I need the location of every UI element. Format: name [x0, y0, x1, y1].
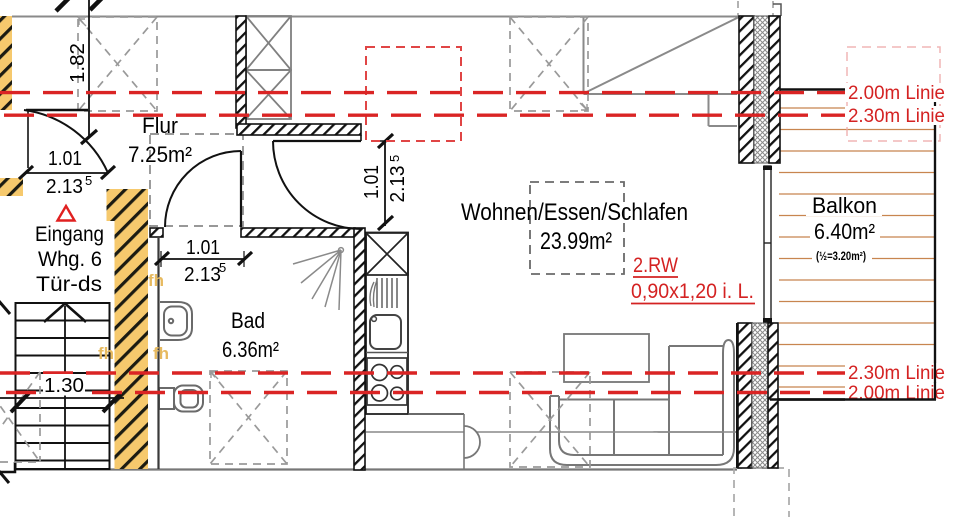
- svg-text:2.13: 2.13: [184, 264, 221, 286]
- svg-text:Wohnen/Essen/Schlafen: Wohnen/Essen/Schlafen: [461, 199, 688, 226]
- svg-text:fh: fh: [153, 344, 169, 363]
- svg-text:fh: fh: [148, 271, 164, 290]
- svg-text:Balkon: Balkon: [812, 193, 877, 218]
- svg-text:Tür-ds: Tür-ds: [36, 273, 102, 296]
- svg-text:2.00m Linie: 2.00m Linie: [848, 83, 945, 104]
- svg-text:2.13: 2.13: [46, 176, 83, 198]
- svg-text:fh: fh: [98, 344, 114, 363]
- svg-text:Flur: Flur: [142, 113, 178, 138]
- svg-text:6.40m²: 6.40m²: [814, 219, 875, 244]
- svg-text:2.30m Linie: 2.30m Linie: [848, 106, 945, 127]
- svg-text:1.01: 1.01: [361, 165, 383, 199]
- svg-text:2.00m Linie: 2.00m Linie: [848, 383, 945, 404]
- svg-text:1.82: 1.82: [67, 43, 89, 83]
- svg-text:2.RW: 2.RW: [633, 254, 678, 277]
- svg-text:1.01: 1.01: [48, 148, 82, 170]
- svg-text:Eingang: Eingang: [35, 223, 104, 246]
- svg-text:1.01: 1.01: [186, 237, 220, 259]
- svg-text:Whg. 6: Whg. 6: [38, 248, 102, 271]
- svg-text:5: 5: [85, 173, 92, 188]
- svg-text:2.30m Linie: 2.30m Linie: [848, 363, 945, 384]
- svg-text:23.99m²: 23.99m²: [540, 228, 612, 255]
- svg-text:6.36m²: 6.36m²: [222, 337, 279, 362]
- svg-text:2.13: 2.13: [387, 166, 409, 203]
- svg-text:5: 5: [387, 155, 402, 162]
- svg-text:5: 5: [219, 260, 226, 275]
- svg-text:7.25m²: 7.25m²: [128, 142, 192, 167]
- svg-text:(½=3.20m²): (½=3.20m²): [816, 251, 866, 263]
- svg-text:0,90x1,20 i. L.: 0,90x1,20 i. L.: [631, 280, 754, 303]
- svg-text:Bad: Bad: [231, 308, 265, 333]
- svg-text:1.30: 1.30: [44, 375, 84, 397]
